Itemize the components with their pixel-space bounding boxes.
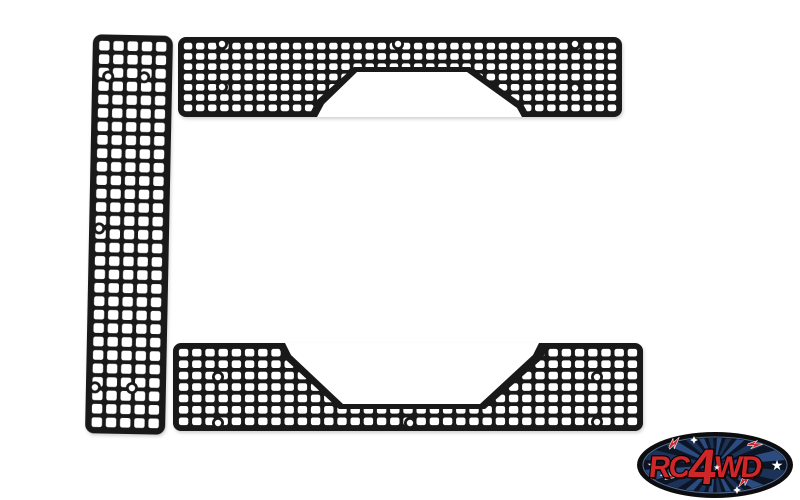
grid-hole [192,395,201,403]
grid-hole [271,372,280,380]
grid-hole [244,105,253,112]
grid-hole [469,417,478,425]
grid-hole [256,84,265,91]
grid-hole [140,122,151,132]
grid-hole [107,377,118,387]
grid-hole [153,163,164,173]
grid-hole [559,94,568,101]
center-star-icon: ★ [713,463,720,472]
grid-hole [583,43,592,50]
grid-hole [608,43,617,50]
grid-hole [112,122,123,132]
grid-hole [245,349,254,357]
grid-hole [575,360,584,368]
grid-hole [245,395,254,403]
grid-hole [179,406,188,414]
grid-hole [535,53,544,60]
mount-hole [215,420,221,426]
grid-hole [184,43,193,50]
grid-hole [414,43,423,50]
grid-hole [522,417,531,425]
grid-hole [256,105,265,112]
grid-hole [232,406,241,414]
grid-hole [154,149,165,159]
grid-hole [139,190,150,200]
grid-hole [95,269,106,279]
grid-hole [601,360,610,368]
grid-hole [285,395,294,403]
grid-hole [108,323,119,333]
grid-hole [317,74,326,81]
grid-hole [571,94,580,101]
grid-hole [559,84,568,91]
grid-hole [138,216,149,226]
grid-hole [337,417,346,425]
grid-hole [462,43,471,50]
grid-hole [153,190,164,200]
grid-hole [108,283,119,293]
grid-hole [138,203,149,213]
grid-hole [111,149,122,159]
grid-hole [107,364,118,374]
grid-hole [97,135,108,145]
grid-hole [535,406,544,414]
mount-hole [594,419,600,425]
grid-hole [575,349,584,357]
grid-hole [219,360,228,368]
grid-hole [305,63,314,70]
grid-hole [244,84,253,91]
grid-hole [205,360,214,368]
grid-hole [499,74,508,81]
grid-hole [113,54,124,64]
grid-hole [196,84,205,91]
grid-hole [341,53,350,60]
grid-hole [155,69,166,79]
grid-hole [98,95,109,105]
grid-hole [124,203,135,213]
grid-hole [244,94,253,101]
grid-hole [208,74,217,81]
grid-hole [196,94,205,101]
grid-hole [220,63,229,70]
grid-hole [135,391,146,401]
grid-hole [124,230,135,240]
grid-hole [94,283,105,293]
grid-hole [305,53,314,60]
grid-hole [208,43,217,50]
grid-hole [92,417,103,427]
grid-hole [123,256,134,266]
grid-hole [499,53,508,60]
grid-hole [608,105,617,112]
grid-hole [208,105,217,112]
grid-hole [153,176,164,186]
grid-hole [109,270,120,280]
grid-hole [152,257,163,267]
grid-hole [549,360,558,368]
grid-hole [156,55,167,65]
grid-hole [126,109,137,119]
grid-hole [111,176,122,186]
grid-hole [511,63,520,70]
grid-hole [269,105,278,112]
grid-hole [122,337,133,347]
grid-hole [628,360,637,368]
grid-hole [559,63,568,70]
grid-hole [523,94,532,101]
grid-hole [601,406,610,414]
grid-hole [232,94,241,101]
grid-hole [150,351,161,361]
grid-hole [244,63,253,70]
grid-hole [628,372,637,380]
grid-hole [575,395,584,403]
grid-hole [608,53,617,60]
grid-hole [113,68,124,78]
grid-hole [628,349,637,357]
grid-hole [208,63,217,70]
grid-hole [293,43,302,50]
grid-hole [109,256,120,266]
grid-hole [615,349,624,357]
grid-hole [123,270,134,280]
grid-hole [293,94,302,101]
grid-hole [285,372,294,380]
grid-hole [615,406,624,414]
grid-hole [151,284,162,294]
grid-hole [547,43,556,50]
grid-hole [106,418,117,428]
grid-hole [219,383,228,391]
grid-hole [511,74,520,81]
grid-hole [615,395,624,403]
grid-hole [547,63,556,70]
grid-hole [562,349,571,357]
grid-hole [559,53,568,60]
grid-hole [96,202,107,212]
grid-hole [317,84,326,91]
mount-hole [572,85,578,91]
grid-hole [179,360,188,368]
grid-hole [121,364,132,374]
grid-hole [571,53,580,60]
grid-hole [496,406,505,414]
grid-hole [547,74,556,81]
grid-hole [258,383,267,391]
grid-hole [196,43,205,50]
grid-hole [184,105,193,112]
grid-hole [311,395,320,403]
grid-hole [511,53,520,60]
grid-hole [562,372,571,380]
grid-hole [317,63,326,70]
grid-hole [575,383,584,391]
grid-hole [139,163,150,173]
mount-hole [219,41,225,47]
mount-hole [215,374,221,380]
grid-hole [535,84,544,91]
grid-hole [575,417,584,425]
grid-hole [179,417,188,425]
grid-hole [583,94,592,101]
grid-hole [281,105,290,112]
grid-hole [107,337,118,347]
grid-hole [142,42,153,52]
grid-hole [329,43,338,50]
grid-hole [535,383,544,391]
grid-hole [450,53,459,60]
grid-hole [123,243,134,253]
grid-hole [271,395,280,403]
grid-hole [628,383,637,391]
grid-hole [245,360,254,368]
grid-hole [583,53,592,60]
grid-hole [93,350,104,360]
grid-hole [269,63,278,70]
grid-hole [522,406,531,414]
grid-hole [149,405,160,415]
grid-hole [110,189,121,199]
grid-hole [149,391,160,401]
grid-hole [155,96,166,106]
grid-hole [414,53,423,60]
grid-hole [138,243,149,253]
grid-hole [111,162,122,172]
grid-hole [547,94,556,101]
grid-hole [324,406,333,414]
grid-hole [426,53,435,60]
grid-hole [232,395,241,403]
grid-hole [93,323,104,333]
grid-hole [92,404,103,414]
grid-hole [94,296,105,306]
grid-hole [615,360,624,368]
grid-hole [112,81,123,91]
grid-hole [628,395,637,403]
grid-hole [293,53,302,60]
grid-hole [136,324,147,334]
grid-hole [95,256,106,266]
grid-hole [126,135,137,145]
grid-hole [134,418,145,428]
grid-hole [192,406,201,414]
grid-hole [232,360,241,368]
grid-hole [341,63,350,70]
grid-hole [244,74,253,81]
grid-hole [562,360,571,368]
grid-hole [271,360,280,368]
grid-hole [596,105,605,112]
grid-hole [108,297,119,307]
grid-hole [281,53,290,60]
grid-hole [95,242,106,252]
mount-hole [572,41,578,47]
grid-hole [583,74,592,81]
grid-hole [140,109,151,119]
grid-hole [588,395,597,403]
grid-hole [232,383,241,391]
grid-hole [293,74,302,81]
grid-hole [281,94,290,101]
product-photo: ★★RC4WDRC4WD★ [0,0,800,500]
grid-hole [601,395,610,403]
grid-hole [523,84,532,91]
grid-hole [124,216,135,226]
grid-hole [113,41,124,51]
grid-hole [110,216,121,226]
grid-hole [97,162,108,172]
grid-hole [364,417,373,425]
grid-hole [192,360,201,368]
grid-hole [256,94,265,101]
grid-hole [208,53,217,60]
grid-hole [583,105,592,112]
grid-hole [125,149,136,159]
grid-hole [438,53,447,60]
grid-hole [256,74,265,81]
grid-hole [232,53,241,60]
grid-hole [205,349,214,357]
grid-hole [127,41,138,51]
grid-hole [608,63,617,70]
grid-hole [139,176,150,186]
grid-hole [535,63,544,70]
grid-hole [205,395,214,403]
grid-hole [293,84,302,91]
grid-hole [305,94,314,101]
grid-hole [281,84,290,91]
grid-hole [535,43,544,50]
grid-hole [293,105,302,112]
grid-hole [615,372,624,380]
grid-hole [106,404,117,414]
grid-hole [269,74,278,81]
grid-hole [596,84,605,91]
grid-hole [192,417,201,425]
grid-hole [120,418,131,428]
top-horizontal-panel [178,37,622,117]
grid-hole [220,105,229,112]
grid-hole [402,53,411,60]
grid-hole [126,122,137,132]
grid-hole [138,230,149,240]
grid-hole [220,94,229,101]
grid-hole [140,149,151,159]
grid-hole [305,43,314,50]
grid-hole [123,283,134,293]
grid-hole [151,270,162,280]
grid-hole [196,63,205,70]
grid-hole [329,74,338,81]
grid-hole [108,310,119,320]
grid-hole [499,43,508,50]
grid-hole [219,349,228,357]
grid-hole [523,53,532,60]
grid-hole [122,310,133,320]
grid-hole [487,43,496,50]
grid-hole [271,383,280,391]
grid-hole [341,43,350,50]
grid-hole [583,84,592,91]
grid-hole [107,350,118,360]
grid-hole [329,63,338,70]
grid-hole [311,417,320,425]
grid-hole [559,105,568,112]
mount-hole [407,420,413,426]
grid-hole [487,63,496,70]
grid-hole [245,406,254,414]
grid-hole [317,43,326,50]
grid-hole [547,84,556,91]
grid-hole [96,189,107,199]
grid-hole [258,417,267,425]
grid-hole [365,53,374,60]
grid-hole [535,395,544,403]
grid-hole [126,95,137,105]
grid-hole [305,74,314,81]
grid-hole [281,63,290,70]
grid-hole [256,53,265,60]
rc4wd-logo: ★★RC4WDRC4WD★ [636,431,794,499]
grid-hole [417,417,426,425]
grid-hole [245,417,254,425]
grid-hole [141,82,152,92]
grid-hole [232,63,241,70]
grid-hole [499,63,508,70]
grid-hole [256,63,265,70]
grid-hole [112,95,123,105]
grid-hole [184,74,193,81]
grid-hole [474,53,483,60]
grid-hole [285,406,294,414]
grid-hole [390,53,399,60]
grid-hole [98,81,109,91]
grid-hole [329,53,338,60]
grid-hole [511,43,520,50]
grid-hole [220,74,229,81]
grid-hole [192,349,201,357]
grid-hole [256,43,265,50]
grid-hole [135,364,146,374]
grid-hole [244,43,253,50]
grid-hole [601,349,610,357]
grid-hole [575,372,584,380]
mount-hole [395,41,401,47]
grid-hole [150,338,161,348]
grid-hole [179,383,188,391]
grid-hole [179,349,188,357]
grid-hole [571,105,580,112]
grid-hole [179,395,188,403]
grid-hole [317,53,326,60]
grid-hole [456,417,465,425]
grid-hole [305,84,314,91]
grid-hole [269,53,278,60]
grid-hole [426,43,435,50]
grid-hole [148,418,159,428]
grid-hole [184,84,193,91]
grid-hole [596,43,605,50]
grid-hole [125,189,136,199]
grid-hole [575,406,584,414]
grid-hole [152,230,163,240]
grid-hole [244,53,253,60]
grid-hole [298,406,307,414]
grid-hole [522,395,531,403]
grid-hole [258,360,267,368]
bottom-horizontal-panel [173,343,643,431]
